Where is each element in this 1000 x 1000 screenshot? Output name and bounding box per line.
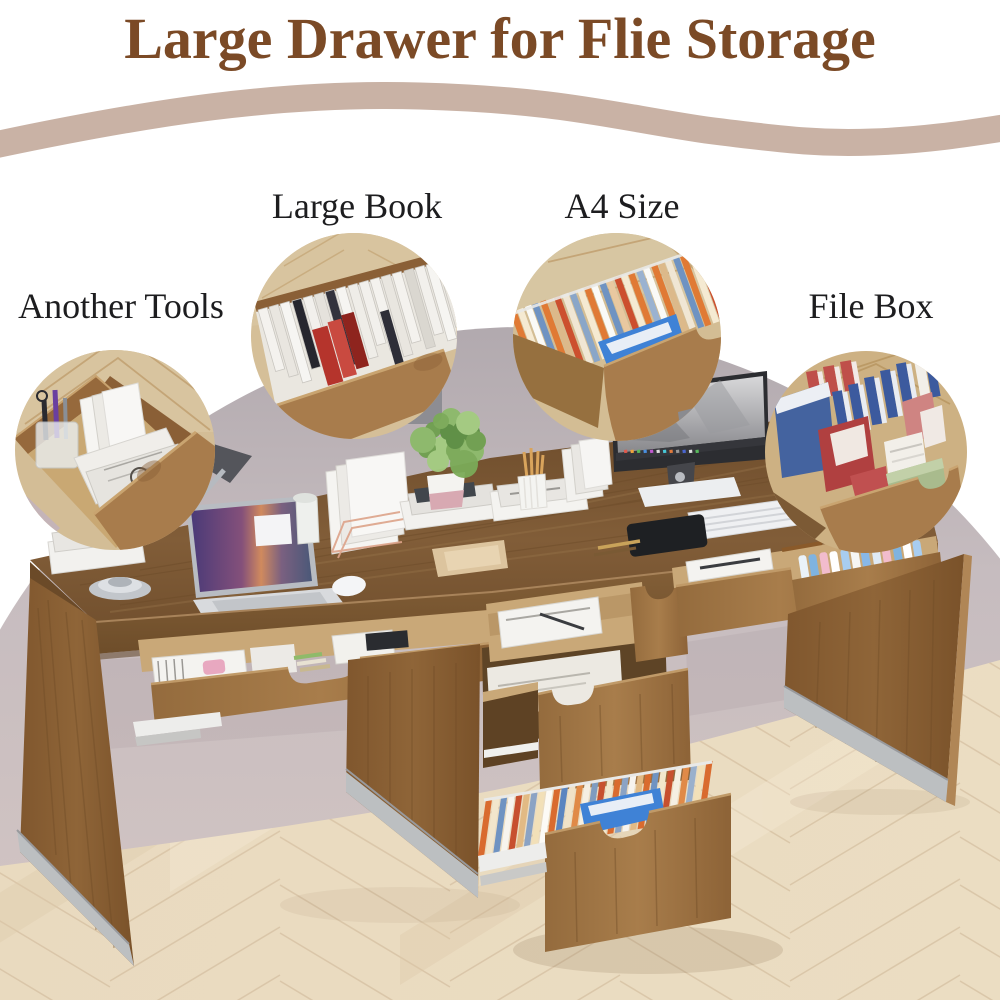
svg-text:Another Tools: Another Tools — [18, 286, 224, 326]
svg-text:File Box: File Box — [808, 286, 933, 326]
svg-text:Large Drawer for Flie Storage: Large Drawer for Flie Storage — [124, 6, 876, 71]
svg-text:Large Book: Large Book — [272, 186, 442, 226]
svg-text:A4 Size: A4 Size — [565, 186, 680, 226]
